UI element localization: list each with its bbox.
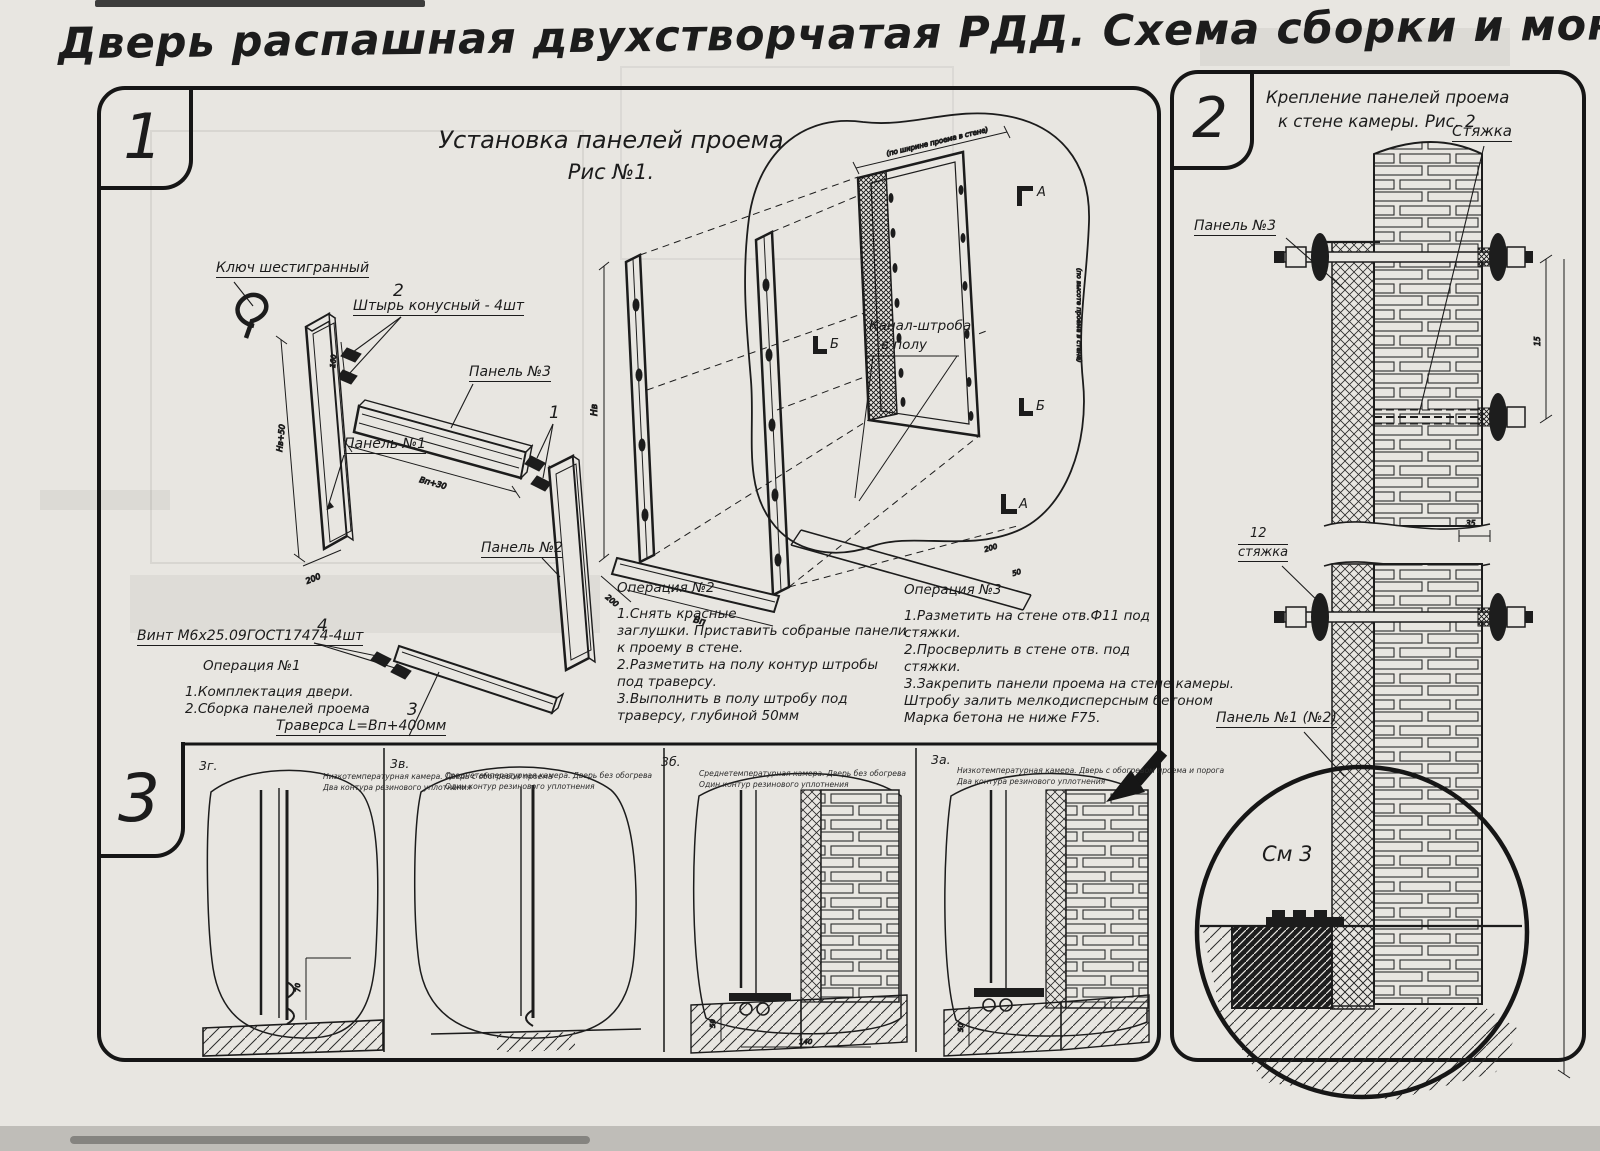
label-panel3: Панель №3 [469, 364, 551, 382]
svg-text:15: 15 [1533, 336, 1542, 346]
svg-text:(по ширине проема в стене): (по ширине проема в стене) [886, 126, 990, 158]
svg-text:140: 140 [799, 1038, 813, 1046]
panel3-shape [354, 384, 532, 478]
page-title: Дверь распашная двухстворчатая РДД. Схем… [58, 1, 1578, 70]
fig1-frame: Нв+50 200 160 Вп+30 [97, 86, 1161, 1062]
grout-block [1232, 926, 1332, 1008]
fig1-section-number: 1 [97, 86, 193, 190]
photo-bottom-smudge [70, 1136, 590, 1144]
item-number-1: 1 [549, 403, 560, 423]
svg-text:160: 160 [329, 354, 338, 369]
blueprint-page: { "colors": {"paper": "#e8e6e1", "ink": … [0, 0, 1600, 1151]
label-tie-item: стяжка [1238, 544, 1288, 562]
svg-text:А: А [1036, 185, 1046, 200]
svg-text:200: 200 [304, 572, 322, 586]
fig1-drawing: Нв+50 200 160 Вп+30 [101, 90, 1157, 1054]
operation-1-title: Операция №1 [203, 658, 370, 675]
svg-text:Нв: Нв [590, 404, 600, 416]
svg-text:А: А [1018, 497, 1028, 512]
panel2-shape [542, 456, 595, 670]
svg-text:70: 70 [294, 983, 302, 992]
label-panel2: Панель №2 [481, 540, 563, 558]
label-panel3-fig2: Панель №3 [1194, 218, 1276, 236]
panel-3b-id: 3б. [661, 754, 681, 769]
svg-text:50: 50 [957, 1023, 965, 1032]
operation-2: Операция №2 1.Снять красные заглушки. Пр… [617, 580, 907, 725]
item-number-3: 3 [407, 700, 418, 720]
svg-text:Нв+50: Нв+50 [275, 424, 287, 452]
detail-reference: См 3 [1262, 842, 1313, 866]
svg-text:50: 50 [1011, 568, 1022, 578]
label-hex-key: Ключ шестигранный [216, 260, 369, 278]
svg-text:200: 200 [983, 542, 999, 554]
label-channel-line2: в полу [881, 337, 927, 353]
panel-3a-id: 3а. [931, 752, 951, 767]
fig3-section-number: 3 [97, 742, 185, 858]
svg-text:Б: Б [830, 337, 839, 352]
sketch-3g: 70 [203, 770, 383, 1056]
wall-lower [1374, 564, 1482, 1004]
operation-2-title: Операция №2 [617, 580, 907, 597]
svg-text:Б: Б [1036, 399, 1045, 414]
wall-upper [1374, 142, 1482, 526]
fig2-title-line1: Крепление панелей проема [1266, 88, 1509, 107]
fig1-subheading: Рис №1. [401, 160, 821, 184]
sketch-3a: 50 [944, 774, 1149, 1057]
label-traverse: Траверса L=Вп+400мм [276, 718, 446, 736]
assembled-frame [612, 232, 789, 612]
fig3-number-text: 3 [118, 760, 160, 837]
label-panel12: Панель №1 (№2) [1216, 710, 1337, 728]
cone-pins [337, 317, 401, 384]
fig2-title-line2: к стене камеры. Рис. 2 [1278, 112, 1476, 131]
svg-text:35: 35 [1466, 519, 1476, 528]
item-number-12: 12 [1250, 526, 1267, 541]
svg-text:Вп+30: Вп+30 [418, 475, 447, 491]
sketch-3v [415, 767, 641, 1052]
panel-3v-id: 3в. [390, 756, 409, 771]
svg-text:50: 50 [709, 1019, 717, 1028]
fig2-section-number: 2 [1170, 70, 1254, 170]
svg-text:(по высоте проема в стене): (по высоте проема в стене) [1075, 268, 1083, 363]
photo-bottom-band [0, 1126, 1600, 1151]
panel-3v-caption: Среднетемпературная камера. Дверь без об… [445, 771, 652, 792]
fig1-number-text: 1 [123, 100, 162, 173]
label-screw: Винт М6х25.09ГОСТ17474-4шт [137, 628, 363, 646]
sketch-3b: 50 140 [691, 774, 907, 1054]
fig2-frame: 15 35 2 Крепление панелей проема к стене… [1170, 70, 1586, 1062]
hex-key-icon [234, 282, 266, 338]
fig1-heading: Установка панелей проема [401, 126, 821, 154]
photo-top-sliver [95, 0, 425, 7]
label-channel-line1: Канал-штроба [869, 318, 971, 334]
fig2-number-text: 2 [1192, 86, 1228, 151]
panel-3g-id: 3г. [199, 758, 218, 773]
label-panel1: Панель №1 [344, 436, 426, 454]
label-cone-pin: Штырь конусный - 4шт [353, 298, 524, 316]
panel-3b-caption: Среднетемпературная камера. Дверь без об… [699, 769, 906, 790]
label-tie: Стяжка [1452, 122, 1512, 142]
operation-1: Операция №1 1.Комплектация двери. 2.Сбор… [185, 658, 370, 718]
